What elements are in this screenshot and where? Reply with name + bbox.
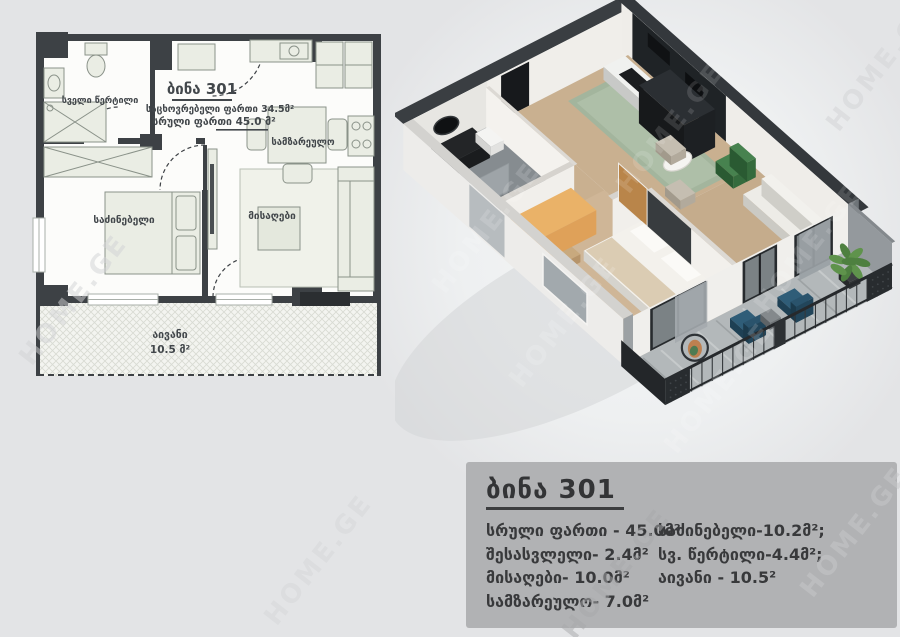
pillow (176, 196, 196, 230)
stove (348, 116, 374, 156)
listing-image: ბინა 301 საცხოვრებელი ფართი 34.5მ² სრული… (0, 0, 900, 637)
chair (283, 164, 312, 183)
pillow (176, 236, 196, 270)
label-bathroom: სველი წერტილი (62, 95, 139, 106)
label-bedroom: საძინებელი (93, 214, 155, 226)
watermark: HOME.GE (258, 489, 379, 632)
entry-closet (178, 44, 215, 70)
label-living: მისაღები (248, 210, 296, 222)
dining-table (268, 107, 326, 163)
label-kitchen: სამზარეულო (271, 137, 334, 148)
total-area: სრული ფართი - 45.0მ² (486, 519, 658, 543)
apartment-info-panel: ბინა 301 სრული ფართი - 45.0მ² შესასვლელი… (466, 462, 897, 628)
balcony-area: აივანი - 10.5² (658, 566, 825, 590)
plan-total-area: სრული ფართი 45.0 მ² (152, 116, 276, 128)
plan-title: ბინა 301 (167, 80, 237, 98)
apartment-title: ბინა 301 (486, 475, 624, 510)
entry-area: შესასვლელი- 2.4მ² (486, 543, 658, 567)
bedroom-area: საძინებელი-10.2მ²; (658, 519, 825, 543)
bathroom-area: სვ. წერტილი-4.4მ²; (658, 543, 825, 567)
label-balcony-area: 10.5 მ² (150, 344, 191, 356)
info-right-column: საძინებელი-10.2მ²; სვ. წერტილი-4.4მ²; აი… (658, 519, 825, 613)
sink (44, 68, 64, 98)
sofa (338, 167, 374, 291)
plan-living-area: საცხოვრებელი ფართი 34.5მ² (146, 104, 294, 115)
toilet-bowl (87, 55, 105, 77)
label-balcony: აივანი (152, 329, 187, 341)
floorplan-3d-render (395, 0, 900, 468)
info-left-column: სრული ფართი - 45.0მ² შესასვლელი- 2.4მ² მ… (486, 519, 658, 613)
floorplan-2d: ბინა 301 საცხოვრებელი ფართი 34.5მ² სრული… (28, 4, 396, 400)
toilet-tank (85, 43, 107, 55)
kitchen-area: სამზარეულო- 7.0მ² (486, 590, 658, 614)
living-area: მისაღები- 10.0მ² (486, 566, 658, 590)
